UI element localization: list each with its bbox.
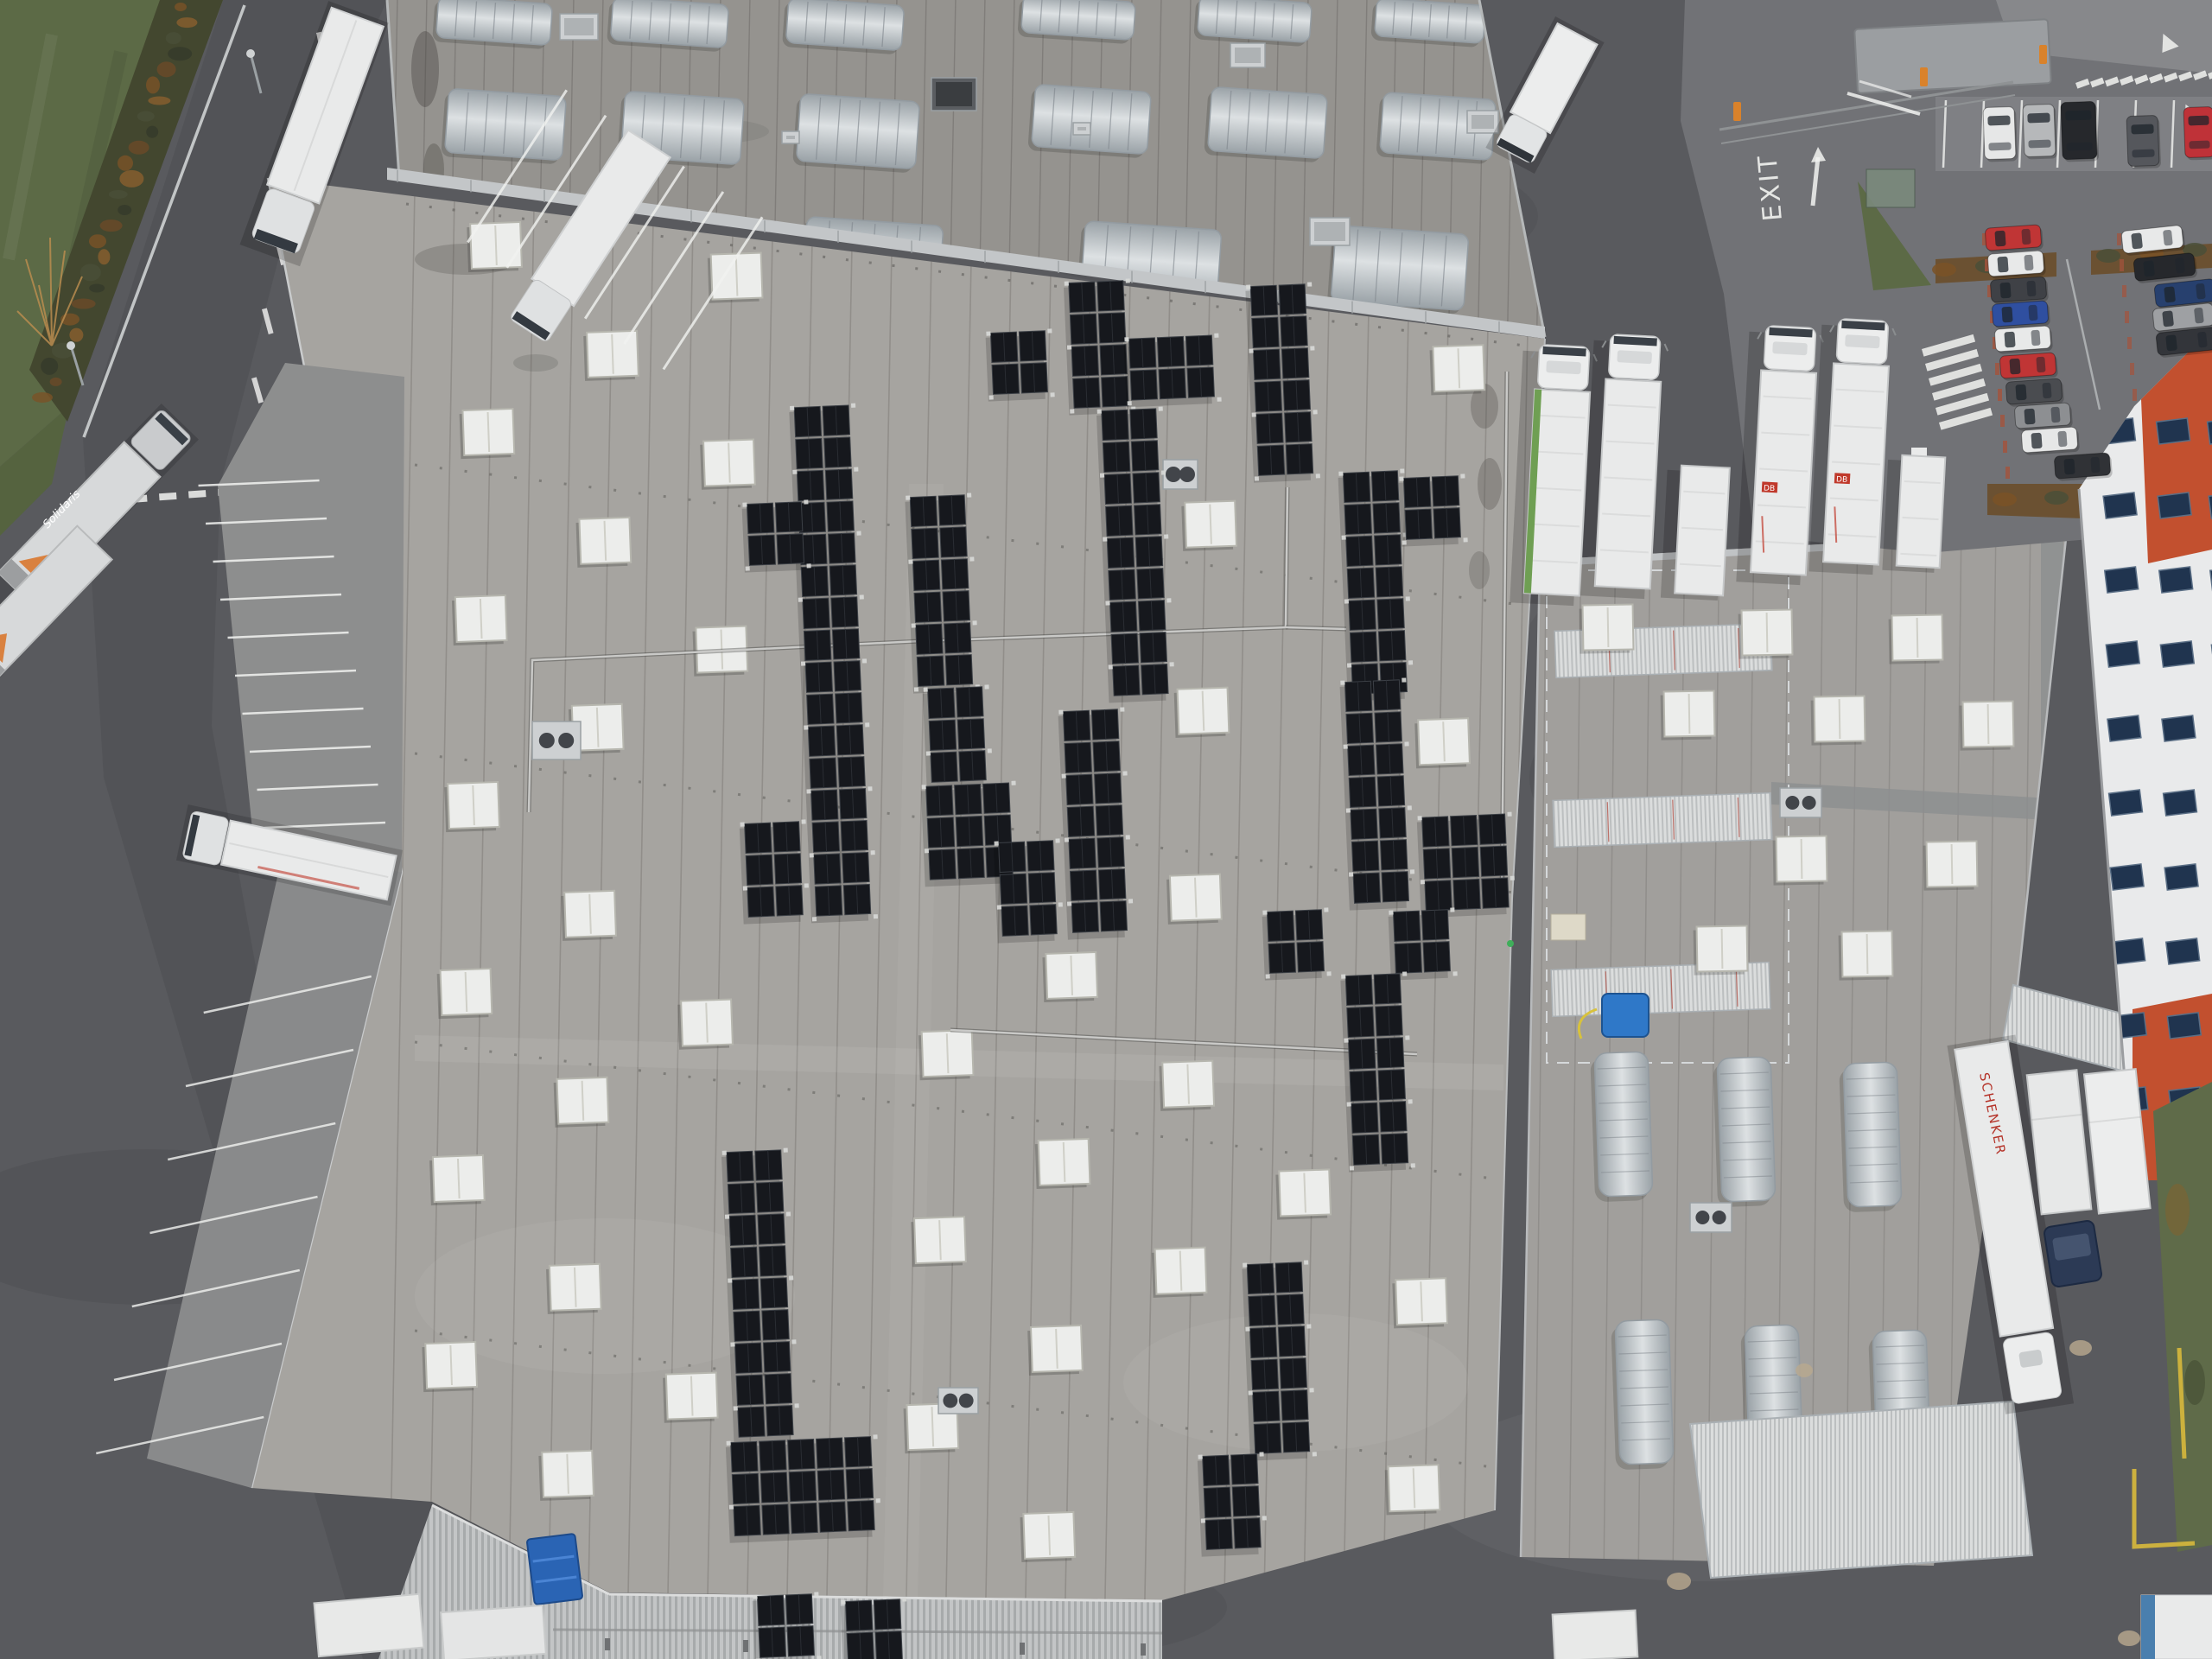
flat-skylight (1960, 701, 2014, 750)
mount-foot (1349, 872, 1353, 876)
flat-skylight (429, 1155, 485, 1205)
flat-skylight (663, 1373, 718, 1423)
mount-foot (1011, 781, 1015, 785)
car-glass (2063, 459, 2075, 475)
car-glass (2050, 407, 2060, 423)
hvac-grill (936, 82, 972, 106)
red-curb-dash (2122, 285, 2126, 297)
signboard (1866, 169, 1915, 207)
car-glass (2065, 110, 2091, 120)
mount-foot (795, 1403, 799, 1408)
car-body (2014, 403, 2071, 429)
roof-stain (1469, 551, 1490, 589)
car-glass (2090, 457, 2100, 474)
mount-foot (972, 620, 976, 625)
hvac-fan (959, 1394, 974, 1408)
mount-foot (1510, 876, 1515, 880)
flat-skylight (459, 409, 514, 459)
mount-foot (1344, 1038, 1348, 1042)
flat-skylight (1392, 1278, 1447, 1328)
mount-foot (969, 556, 974, 561)
solar-array (985, 328, 1054, 401)
mount-foot (1161, 470, 1166, 474)
hvac-fan (1179, 467, 1195, 482)
flat-skylight (444, 782, 499, 832)
flat-skylight (1166, 874, 1222, 925)
car-body (2005, 378, 2063, 404)
flat-skylight (1035, 1139, 1090, 1189)
skylight-mullion (1840, 699, 1840, 739)
hedge-bush (69, 328, 83, 342)
skylight-mullion (1722, 929, 1723, 969)
car-body (1987, 251, 2044, 276)
skylight-glass (1594, 1052, 1653, 1197)
car-body (1992, 301, 2049, 327)
car-glass (2036, 357, 2045, 373)
barrel-skylight (607, 0, 729, 53)
mount-foot (1217, 397, 1221, 402)
mount-foot (1126, 835, 1130, 839)
truck-cab (2002, 1332, 2062, 1404)
hvac-unit (938, 1388, 978, 1414)
red-curb-dash (1998, 389, 2002, 401)
hvac-unit (1230, 43, 1265, 67)
trailer-roof (1595, 378, 1661, 588)
mount-foot (1313, 1452, 1317, 1456)
mount-foot (806, 789, 810, 793)
mount-foot (806, 563, 810, 568)
mount-foot (1214, 334, 1218, 338)
red-curb-dash (2120, 259, 2124, 271)
office-window (2110, 864, 2144, 890)
mount-foot (1347, 1102, 1351, 1106)
giveway-dash (188, 490, 207, 498)
trailer-roof (315, 1594, 424, 1656)
car-glass (2143, 260, 2155, 276)
car-glass (2026, 281, 2036, 297)
mount-foot (1350, 1166, 1354, 1170)
mount-foot (1124, 337, 1128, 341)
mount-foot (789, 1275, 793, 1280)
flat-skylight (1889, 614, 1943, 664)
mount-foot (995, 841, 999, 845)
car-glass (2165, 334, 2177, 351)
flat-skylight (1694, 925, 1748, 975)
mount-foot (1262, 910, 1267, 914)
solar-array (1262, 907, 1331, 980)
hvac-fan (539, 733, 555, 748)
barrel-skylight (1193, 0, 1312, 47)
car-glass (2189, 141, 2209, 149)
hvac-unit (931, 78, 976, 111)
db-logo-text: DB (1764, 485, 1776, 494)
hedge-bush (100, 219, 123, 232)
mount-foot (742, 502, 747, 506)
car-glass (2024, 255, 2033, 271)
hedge-bush (119, 170, 143, 188)
mount-foot (856, 531, 861, 535)
office-window (2159, 567, 2193, 593)
trailer-container (1882, 454, 1945, 573)
mount-foot (1402, 677, 1406, 682)
flat-skylight (1181, 501, 1236, 551)
hvac-grill (564, 18, 594, 35)
hvac-unit (1467, 111, 1498, 133)
car-glass (2028, 140, 2050, 149)
barrel-skylight (1590, 1052, 1653, 1202)
skylight-glass (1843, 1062, 1902, 1207)
mount-foot (1402, 540, 1407, 544)
office-window (2166, 938, 2200, 964)
car-body (1999, 353, 2056, 378)
car-body (2054, 453, 2111, 479)
mount-foot (786, 1211, 791, 1216)
hvac-unit (560, 14, 598, 40)
barrel-skylight (792, 93, 919, 174)
hvac-grill (1077, 127, 1086, 130)
hedge-bush (175, 3, 187, 11)
mount-foot (814, 1592, 818, 1596)
mount-foot (1067, 345, 1071, 349)
car-body (2183, 106, 2212, 157)
mount-foot (1347, 663, 1351, 667)
mount-foot (1310, 346, 1314, 350)
parked-car (1992, 301, 2050, 330)
flat-skylight (918, 1030, 974, 1080)
hedge-bush (148, 96, 170, 105)
solar-array (1123, 334, 1221, 408)
mount-foot (1344, 599, 1349, 603)
mount-foot (1105, 601, 1109, 605)
solar-array (1388, 907, 1457, 980)
car-body (2021, 427, 2078, 453)
parked-car (2023, 104, 2057, 159)
mount-foot (925, 849, 929, 853)
car-glass (2042, 383, 2051, 399)
solar-array (994, 838, 1065, 943)
mount-foot (801, 661, 805, 665)
hedge-bush (1993, 493, 2017, 506)
car-glass (2009, 359, 2020, 375)
giveway-dash (159, 493, 177, 500)
car-glass (2057, 431, 2067, 448)
hvac-fan (558, 733, 574, 748)
mount-foot (914, 687, 918, 691)
barrel-skylight (432, 0, 552, 50)
skylight-mullion (1802, 839, 1802, 879)
office-window (2167, 1013, 2201, 1039)
mount-foot (1120, 707, 1124, 711)
trailer-roof (441, 1605, 546, 1659)
rooftop-box (1551, 914, 1586, 940)
roof-stain (513, 354, 558, 372)
red-curb-dash (1995, 363, 1999, 375)
parked-car (1999, 353, 2058, 382)
hvac-grill (1314, 222, 1345, 241)
mount-foot (860, 594, 864, 599)
mount-foot (1410, 869, 1414, 874)
mount-foot (1326, 971, 1331, 976)
office-window (2157, 418, 2190, 444)
hedge-bush (176, 17, 197, 28)
mount-foot (1243, 1263, 1247, 1268)
flat-skylight (546, 1264, 601, 1314)
mount-foot (1262, 1516, 1267, 1520)
blue-dumpster (527, 1534, 583, 1605)
office-window (2160, 641, 2194, 667)
office-window (2106, 641, 2139, 667)
hedge-bush (137, 111, 155, 122)
mount-foot (1201, 1518, 1205, 1522)
car-glass (2001, 307, 2012, 323)
red-curb-dash (2125, 311, 2129, 323)
hvac-unit (1780, 788, 1821, 817)
skylight-mullion (1608, 607, 1609, 647)
car-glass (2164, 286, 2176, 302)
hedge-bush (129, 141, 149, 155)
mount-foot (926, 751, 931, 755)
mount-foot (1341, 975, 1345, 979)
mount-foot (988, 748, 992, 753)
mount-foot (1249, 1390, 1253, 1395)
flat-skylight (422, 1342, 477, 1392)
gate-canopy (1854, 19, 2051, 93)
mount-foot (1065, 282, 1069, 286)
mount-foot (865, 722, 869, 727)
mount-foot (1252, 412, 1256, 416)
hedge-bush (118, 156, 133, 171)
parked-car (2061, 101, 2099, 162)
blue-truck-cab (2044, 1220, 2102, 1287)
mount-foot (1097, 410, 1102, 414)
car-glass (2194, 308, 2204, 324)
trailer-roof (1553, 1611, 1638, 1659)
car-body (2126, 115, 2159, 166)
hedge-bush (41, 358, 58, 375)
hedge-bush (89, 283, 105, 292)
flat-skylight (583, 331, 639, 381)
mount-foot (791, 1339, 796, 1344)
car-glass (2024, 409, 2035, 425)
solar-array (1198, 1452, 1268, 1556)
hedge-bush (2096, 249, 2120, 263)
mount-foot (1245, 1326, 1249, 1331)
red-curb-dash (2000, 415, 2005, 427)
hvac-grill (1235, 48, 1261, 63)
mount-foot (1058, 902, 1063, 906)
car-body (2023, 104, 2056, 156)
mount-foot (1450, 907, 1454, 912)
mount-foot (1067, 901, 1071, 906)
mount-foot (725, 1215, 729, 1219)
car-glass (2196, 283, 2206, 300)
mount-foot (997, 905, 1001, 909)
mount-foot (1411, 1163, 1415, 1167)
hvac-fan (1713, 1211, 1726, 1224)
barrel-skylight (1370, 0, 1485, 48)
mount-foot (1070, 409, 1074, 413)
flat-skylight (911, 1217, 966, 1267)
skylight-mullion (1689, 694, 1690, 734)
mount-foot (1342, 535, 1346, 539)
cab-sunroof (1546, 360, 1581, 374)
flat-skylight (677, 1000, 733, 1050)
mount-foot (753, 1594, 757, 1599)
mount-foot (1460, 474, 1465, 478)
mount-foot (1159, 407, 1163, 411)
mount-foot (1313, 410, 1317, 414)
mount-foot (906, 496, 910, 500)
mount-foot (862, 658, 867, 663)
car-glass (2131, 232, 2143, 249)
car-glass (1997, 257, 2008, 273)
hedge-bush (109, 190, 128, 199)
hedge-bush (157, 61, 176, 77)
mount-foot (1408, 1099, 1412, 1103)
corrugated-skylight (1553, 793, 1772, 848)
aerial-photo: EXIT (0, 0, 2212, 1659)
car-glass (2175, 257, 2185, 274)
red-curb-dash (2003, 441, 2007, 453)
mount-foot (924, 687, 928, 691)
mount-foot (798, 598, 803, 602)
mount-foot (1259, 1452, 1263, 1456)
mount-foot (1304, 1260, 1308, 1264)
mount-foot (1166, 598, 1171, 602)
parked-car (2183, 106, 2212, 160)
red-curb-dash (2127, 337, 2132, 349)
mount-foot (746, 566, 750, 570)
hedge-bush (2044, 491, 2069, 505)
flat-skylight (1923, 841, 1978, 890)
shrub (2165, 1184, 2190, 1236)
flat-skylight (1429, 345, 1484, 395)
mount-foot (1338, 472, 1343, 476)
flat-skylight (1811, 696, 1866, 745)
mount-foot (1452, 971, 1457, 976)
mount-foot (1062, 773, 1066, 778)
parked-car (1994, 326, 2053, 355)
mount-foot (1126, 278, 1130, 283)
flat-skylight (1042, 952, 1097, 1002)
car-body (1983, 106, 2016, 159)
hvac-fan (1695, 1211, 1709, 1224)
barrel-skylight (1713, 1057, 1776, 1207)
mount-foot (922, 785, 926, 789)
roof-stain (1478, 458, 1502, 510)
barrel-skylight (1027, 84, 1151, 158)
hedge-bush (168, 47, 192, 60)
mount-foot (1404, 741, 1408, 746)
mount-foot (1055, 838, 1059, 842)
hedge-bush (146, 76, 160, 93)
hedge-bush (1932, 263, 1956, 276)
mount-foot (984, 684, 988, 689)
mount-foot (1306, 1324, 1311, 1328)
parked-car (2054, 453, 2113, 482)
flat-skylight (1020, 1512, 1075, 1562)
solar-array (740, 819, 810, 924)
mount-foot (1408, 805, 1412, 810)
hedge-bush (50, 378, 62, 386)
hvac-unit (1073, 123, 1090, 135)
mount-foot (727, 1441, 731, 1446)
flat-skylight (1738, 609, 1793, 658)
car-glass (2188, 116, 2209, 126)
mount-foot (1400, 468, 1404, 473)
mount-foot (1405, 1035, 1409, 1039)
office-window (2103, 493, 2137, 518)
mount-foot (741, 822, 745, 826)
mount-foot (728, 1278, 732, 1282)
mount-foot (902, 1597, 906, 1601)
mount-foot (817, 1656, 821, 1659)
mount-foot (967, 493, 971, 497)
aerial-photo-stage: EXIT (0, 0, 2212, 1659)
car-glass (1994, 231, 2005, 247)
flat-skylight (1661, 690, 1715, 740)
office-window (2107, 715, 2141, 741)
mount-foot (874, 914, 878, 918)
office-window (2164, 864, 2198, 890)
car-glass (2163, 230, 2173, 246)
office-window (2158, 493, 2191, 518)
hedge-bush (72, 299, 96, 309)
hi-vis-worker-dot (1507, 940, 1514, 947)
mount-foot (792, 470, 797, 474)
mount-foot (1309, 1388, 1313, 1392)
mount-foot (1065, 837, 1069, 842)
mount-foot (873, 1434, 877, 1439)
flat-skylight (554, 1077, 609, 1128)
exit-text: EXIT (1752, 152, 1789, 222)
hedge-bush (80, 264, 101, 281)
mount-foot (1316, 474, 1320, 478)
mount-foot (1408, 660, 1413, 664)
flat-skylight (538, 1451, 594, 1501)
hedge-bush (118, 205, 131, 215)
trailer-roof (1751, 370, 1816, 575)
car-glass (2066, 142, 2092, 150)
car-glass (2197, 332, 2208, 348)
hvac-unit (1163, 460, 1198, 489)
hvac-fan (943, 1394, 957, 1408)
car-glass (2004, 332, 2015, 348)
flat-skylight (700, 440, 755, 490)
mount-foot (1406, 596, 1410, 601)
red-curb-dash (2117, 233, 2121, 245)
db-logo-text: DB (1836, 475, 1848, 485)
mount-foot (1255, 476, 1259, 480)
skylight-mullion (1988, 704, 1989, 744)
mount-foot (801, 819, 805, 823)
car-glass (1999, 283, 2011, 299)
barrel-skylight (1204, 86, 1327, 162)
mount-foot (1402, 971, 1407, 976)
office-window (2164, 790, 2197, 816)
mount-foot (790, 406, 794, 410)
flat-skylight (1152, 1248, 1207, 1298)
parked-car (2126, 115, 2161, 168)
office-window (2105, 567, 2139, 593)
parked-car (2005, 378, 2064, 408)
mount-foot (1047, 328, 1052, 333)
mount-foot (734, 1406, 738, 1410)
cab-sunroof (1772, 341, 1808, 355)
mount-foot (804, 499, 808, 504)
flat-skylight (1580, 604, 1634, 653)
mount-foot (810, 853, 814, 857)
